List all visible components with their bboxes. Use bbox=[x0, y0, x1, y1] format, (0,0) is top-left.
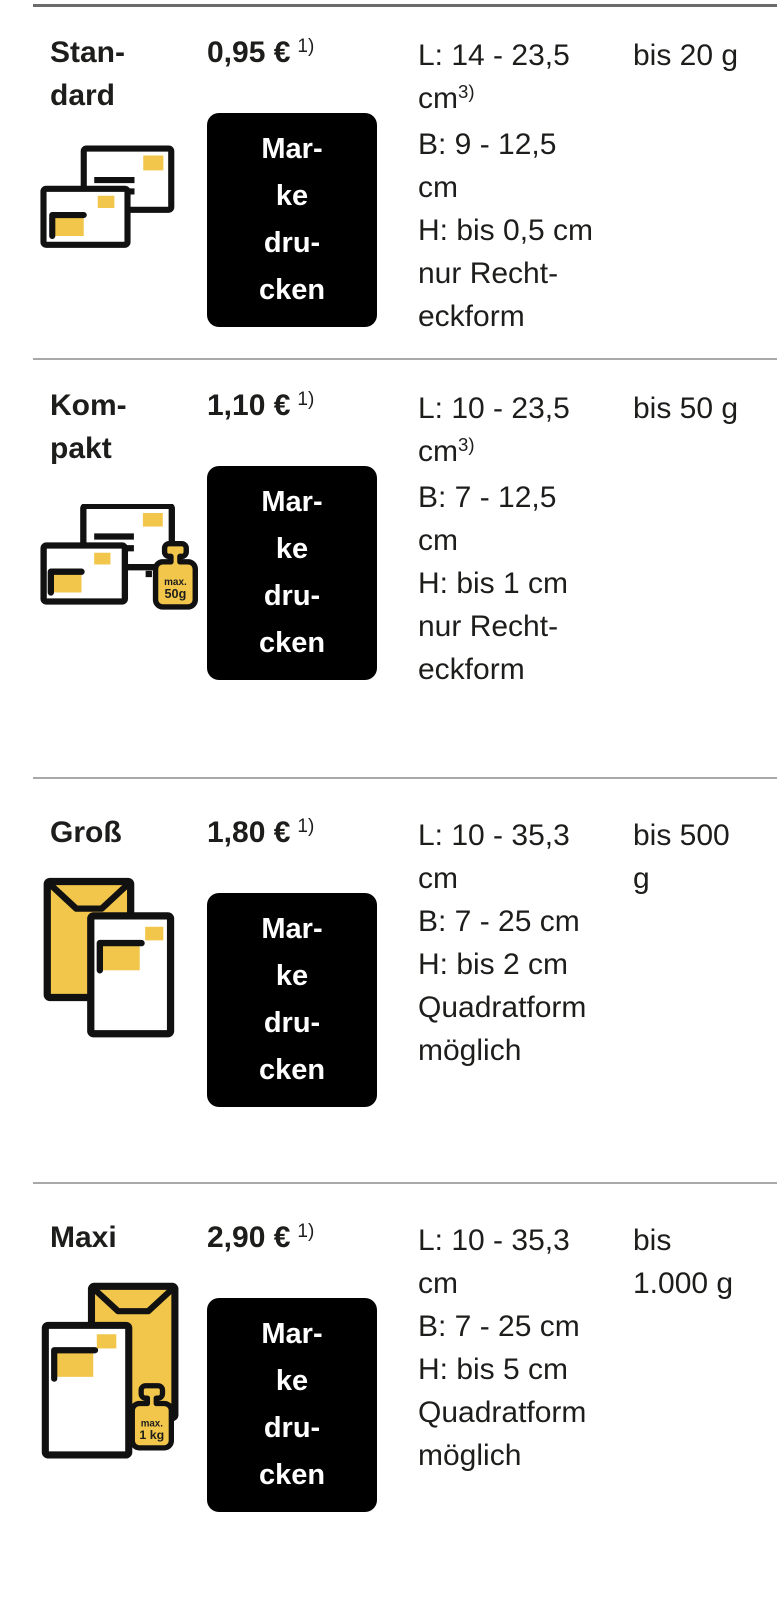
max-weight: bis 1.000 g bbox=[633, 1216, 777, 1600]
table-row-maxi: Maxi max. 1 kg 2,90 €1) Mar- ke dru- cke… bbox=[33, 1182, 777, 1600]
format-name: Stan- dard bbox=[50, 31, 207, 117]
max-weight: bis 500 g bbox=[633, 811, 777, 1182]
price-cell: 1,10 €1) Mar- ke dru- cken bbox=[207, 384, 418, 777]
price-cell: 1,80 €1) Mar- ke dru- cken bbox=[207, 811, 418, 1182]
price-cell: 0,95 €1) Mar- ke dru- cken bbox=[207, 31, 418, 358]
price-value: 0,95 € bbox=[207, 36, 290, 69]
format-name: Kom- pakt bbox=[50, 384, 207, 470]
dimensions: L: 10 - 35,3 cm B: 7 - 25 cm H: bis 5 cm… bbox=[418, 1216, 633, 1600]
table-row-kompakt: Kom- pakt max. 50g 1,10 €1) Mar- ke dru-… bbox=[33, 358, 777, 777]
price-footnote: 1) bbox=[297, 389, 314, 410]
price-footnote: 1) bbox=[297, 816, 314, 837]
price-value: 2,90 € bbox=[207, 1221, 290, 1254]
price-value: 1,10 € bbox=[207, 389, 290, 422]
price-footnote: 1) bbox=[297, 36, 314, 57]
large-envelope-letter-icon bbox=[40, 876, 176, 1039]
price: 1,80 €1) bbox=[207, 811, 418, 858]
price: 0,95 €1) bbox=[207, 31, 418, 78]
dimensions: L: 14 - 23,5 cm3) B: 9 - 12,5 cm H: bis … bbox=[418, 31, 633, 358]
max-weight: bis 50 g bbox=[633, 384, 777, 777]
max-weight: bis 20 g bbox=[633, 31, 777, 358]
print-stamp-button[interactable]: Mar- ke dru- cken bbox=[207, 893, 377, 1107]
large-envelope-letter-weight-1kg-icon: max. 1 kg bbox=[40, 1281, 182, 1459]
price-cell: 2,90 €1) Mar- ke dru- cken bbox=[207, 1216, 418, 1600]
table-row-standard: Stan- dard 0,95 €1) Mar- ke dru- cken L:… bbox=[33, 4, 777, 358]
letter-price-table: Stan- dard 0,95 €1) Mar- ke dru- cken L:… bbox=[33, 4, 777, 1600]
print-stamp-button[interactable]: Mar- ke dru- cken bbox=[207, 1298, 377, 1512]
weight-icon-label-line2: 50g bbox=[165, 587, 187, 601]
format-name: Maxi bbox=[50, 1216, 207, 1259]
two-envelopes-icon bbox=[40, 145, 180, 250]
format-name: Groß bbox=[50, 811, 207, 854]
dimensions: L: 10 - 23,5 cm3) B: 7 - 12,5 cm H: bis … bbox=[418, 384, 633, 777]
format-cell: Maxi max. 1 kg bbox=[50, 1216, 207, 1600]
format-cell: Groß bbox=[50, 811, 207, 1182]
dimensions: L: 10 - 35,3 cm B: 7 - 25 cm H: bis 2 cm… bbox=[418, 811, 633, 1182]
price-value: 1,80 € bbox=[207, 816, 290, 849]
table-row-gross: Groß 1,80 €1) Mar- ke dru- cken L: 10 - … bbox=[33, 777, 777, 1182]
print-stamp-button[interactable]: Mar- ke dru- cken bbox=[207, 466, 377, 680]
print-stamp-button[interactable]: Mar- ke dru- cken bbox=[207, 113, 377, 327]
format-cell: Stan- dard bbox=[50, 31, 207, 358]
price: 2,90 €1) bbox=[207, 1216, 418, 1263]
weight-icon-label-line2: 1 kg bbox=[139, 1428, 164, 1442]
price: 1,10 €1) bbox=[207, 384, 418, 431]
format-cell: Kom- pakt max. 50g bbox=[50, 384, 207, 777]
two-envelopes-weight-50g-icon: max. 50g bbox=[40, 504, 198, 612]
price-footnote: 1) bbox=[297, 1221, 314, 1242]
